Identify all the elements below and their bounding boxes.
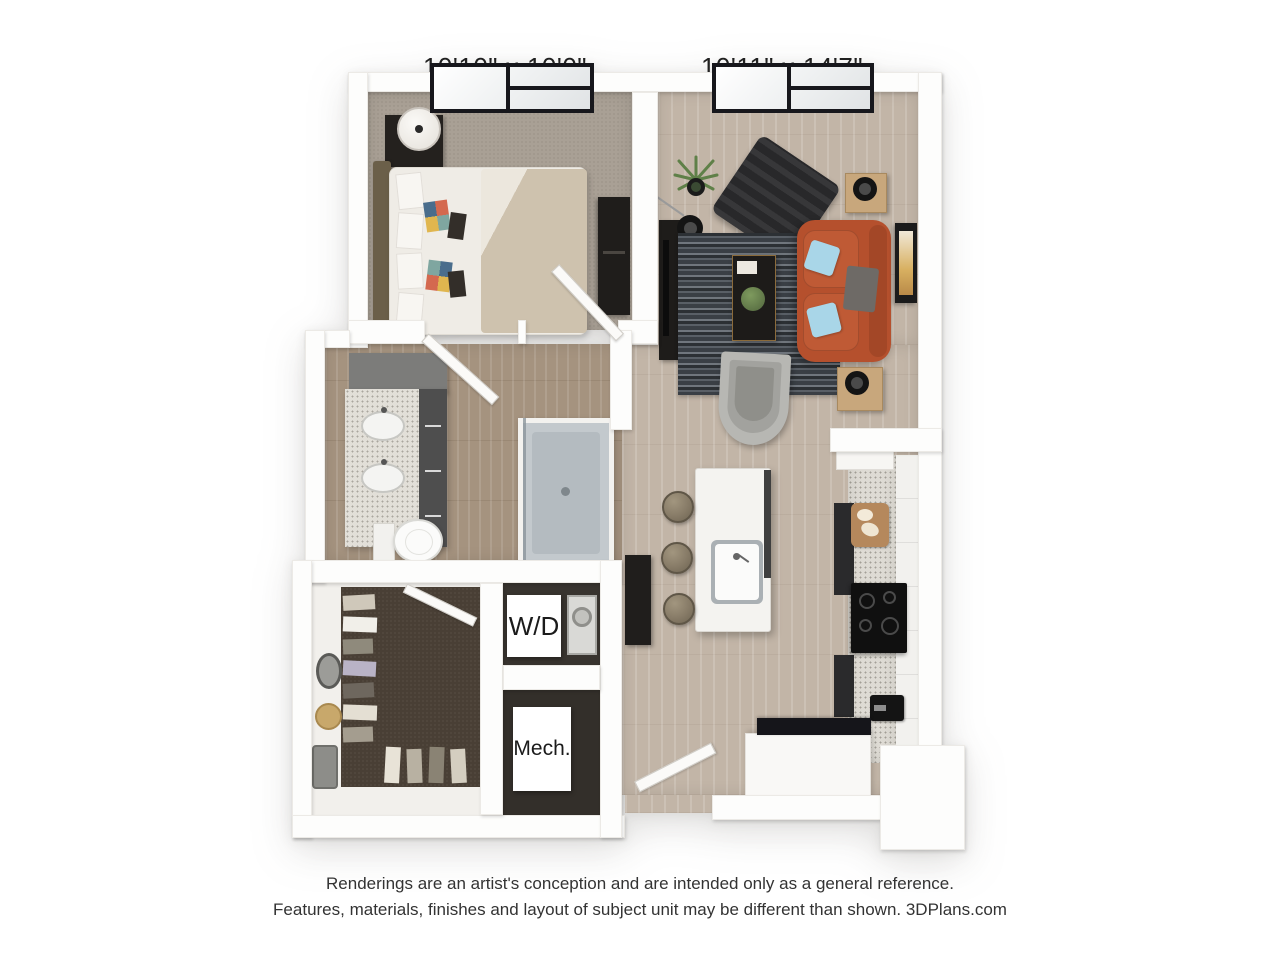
mirror bbox=[316, 653, 342, 689]
interior-wall-bedroom-bath bbox=[348, 320, 425, 344]
table-lamp-finial bbox=[415, 125, 423, 133]
peninsula-counter bbox=[745, 733, 871, 799]
shower-glass bbox=[523, 418, 526, 568]
hanging-clothes bbox=[384, 747, 401, 784]
interior-wall-hall bbox=[610, 330, 632, 430]
disclaimer-line-2: Features, materials, finishes and layout… bbox=[0, 897, 1280, 923]
hanging-clothes bbox=[343, 594, 376, 611]
exterior-wall-bottom-kitchen bbox=[712, 795, 885, 820]
hanging-clothes bbox=[343, 726, 374, 742]
entry-floor bbox=[625, 795, 712, 813]
burner bbox=[883, 591, 896, 604]
hanging-clothes bbox=[343, 638, 374, 654]
bed-pillow bbox=[396, 252, 424, 289]
exterior-wall-bottom bbox=[292, 815, 625, 838]
burner bbox=[859, 593, 875, 609]
peninsula-appliance bbox=[757, 718, 871, 735]
interior-wall-bedroom-living bbox=[632, 92, 658, 345]
exterior-wall-left-bedroom bbox=[348, 72, 368, 348]
burner bbox=[881, 617, 899, 635]
toilet-seat bbox=[405, 529, 433, 555]
hanging-clothes bbox=[343, 704, 378, 720]
dresser bbox=[598, 197, 630, 315]
living-room-window bbox=[712, 63, 874, 113]
basket bbox=[315, 703, 342, 730]
bar-stool bbox=[663, 593, 695, 625]
toilet-tank bbox=[373, 523, 395, 561]
faucet bbox=[381, 459, 387, 465]
bar-stool bbox=[661, 542, 693, 574]
hanging-clothes bbox=[450, 749, 467, 784]
sofa-throw bbox=[843, 265, 879, 312]
bed-pillow bbox=[395, 172, 425, 211]
interior-wall-laundry-hall bbox=[600, 560, 622, 838]
drawer-handle bbox=[425, 515, 441, 517]
hanging-clothes bbox=[428, 747, 444, 784]
art-canvas bbox=[899, 231, 913, 295]
tv bbox=[663, 240, 669, 336]
stove-cooktop bbox=[851, 583, 907, 653]
hall-cabinet bbox=[625, 555, 651, 645]
hanging-clothes bbox=[343, 660, 377, 677]
door-jamb bbox=[518, 320, 526, 344]
faucet bbox=[381, 407, 387, 413]
accent-chair-cushion bbox=[734, 366, 775, 422]
bar-stool bbox=[662, 491, 694, 523]
drawer-handle bbox=[425, 470, 441, 472]
disclaimer-text: Renderings are an artist's conception an… bbox=[0, 871, 1280, 923]
side-table-lamp bbox=[853, 177, 877, 201]
coffee-table-book bbox=[737, 261, 757, 274]
dishwasher bbox=[834, 655, 854, 717]
hanging-clothes bbox=[406, 749, 422, 784]
vanity-sink bbox=[361, 463, 405, 493]
exterior-wall-left-bathroom bbox=[305, 330, 325, 583]
coffee-table-plant bbox=[741, 287, 765, 311]
exterior-wall-corner bbox=[880, 745, 965, 850]
bedroom-window bbox=[430, 63, 594, 113]
disclaimer-line-1: Renderings are an artist's conception an… bbox=[0, 871, 1280, 897]
island-side-panel bbox=[764, 470, 771, 578]
shower-drain bbox=[561, 487, 570, 496]
vanity-sink bbox=[361, 411, 405, 441]
coffee-maker-tray bbox=[874, 705, 886, 711]
interior-wall-closet-laundry bbox=[480, 583, 503, 815]
accent-pillow-patterned bbox=[423, 199, 451, 232]
interior-wall-laundry-mech bbox=[503, 665, 600, 690]
hanging-clothes bbox=[343, 682, 375, 699]
drawer-handle bbox=[425, 425, 441, 427]
floorplan-image: 10'10" x 10'0" 10'11" x 14'7" bbox=[0, 0, 1280, 960]
side-table-lamp bbox=[845, 371, 869, 395]
washer-dryer-label: W/D bbox=[507, 595, 561, 657]
hanging-clothes bbox=[343, 616, 378, 632]
bread bbox=[857, 509, 873, 521]
interior-wall-bath-closet bbox=[305, 560, 622, 583]
garment-bag bbox=[312, 745, 338, 789]
vanity-cabinet bbox=[349, 353, 447, 393]
bed-duvet bbox=[481, 169, 587, 333]
bed-pillow bbox=[396, 212, 424, 250]
exterior-wall-left-closet bbox=[292, 560, 312, 838]
dresser-handle bbox=[603, 251, 625, 254]
potted-plant bbox=[673, 155, 719, 201]
washer-door bbox=[572, 607, 592, 627]
accent-pillow-dark bbox=[448, 270, 467, 298]
interior-wall-kitchen bbox=[830, 428, 942, 452]
mechanical-label: Mech. bbox=[513, 707, 571, 791]
floor-plan: W/D Mech. bbox=[285, 55, 985, 855]
burner bbox=[859, 619, 872, 632]
